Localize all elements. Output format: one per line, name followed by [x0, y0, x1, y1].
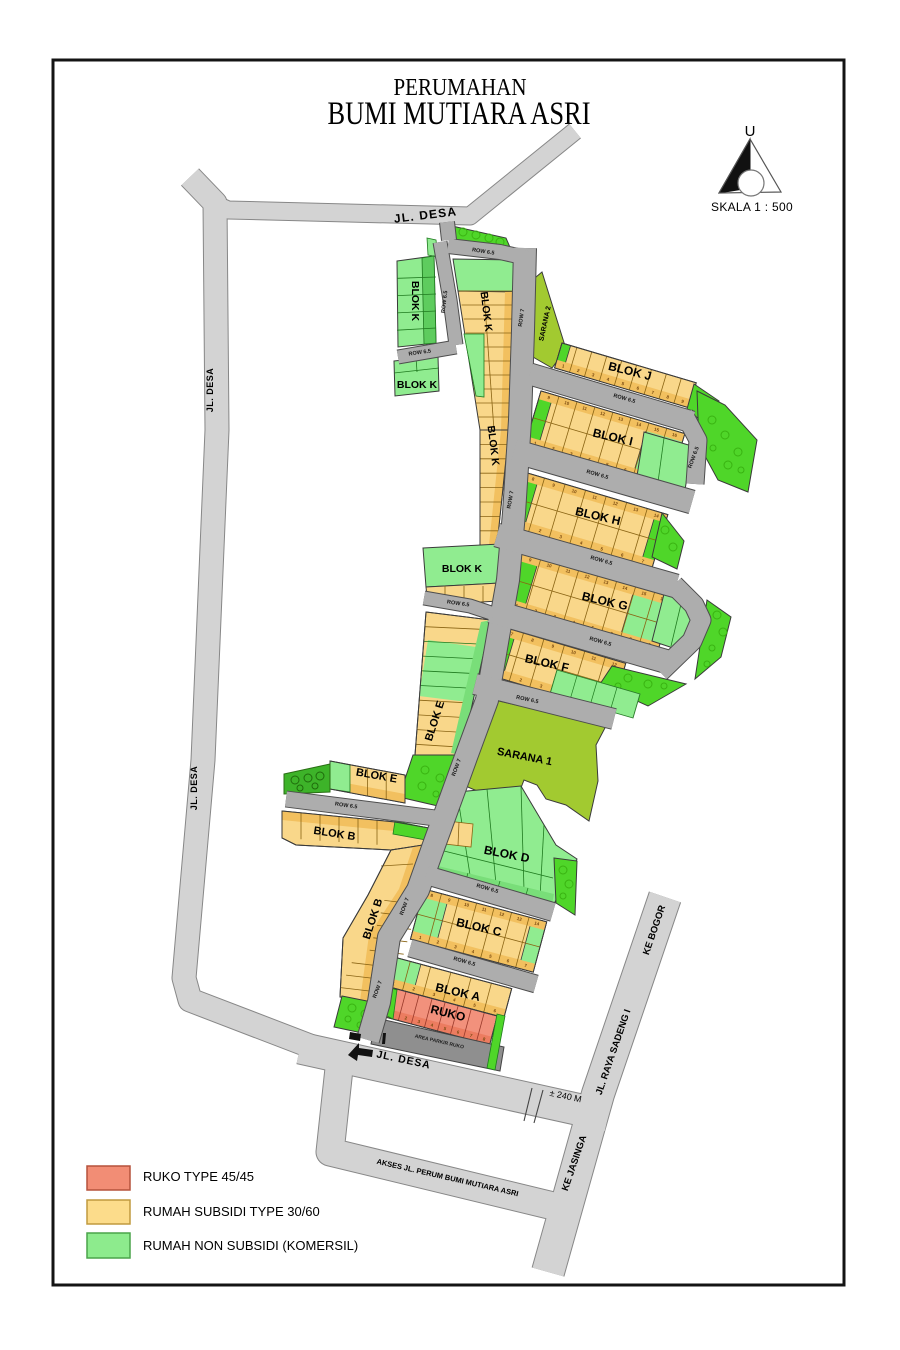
- svg-text:U: U: [745, 123, 756, 140]
- svg-text:RUMAH SUBSIDI TYPE 30/60: RUMAH SUBSIDI TYPE 30/60: [143, 1204, 320, 1219]
- svg-text:JL. DESA: JL. DESA: [189, 766, 199, 811]
- svg-text:BLOK K: BLOK K: [409, 281, 421, 322]
- svg-text:SKALA 1 : 500: SKALA 1 : 500: [711, 200, 793, 214]
- svg-text:RUMAH NON SUBSIDI (KOMERSIL): RUMAH NON SUBSIDI (KOMERSIL): [143, 1238, 358, 1253]
- svg-text:BLOK K: BLOK K: [442, 563, 483, 575]
- svg-text:BUMI MUTIARA ASRI: BUMI MUTIARA ASRI: [328, 96, 591, 132]
- svg-text:JL. DESA: JL. DESA: [205, 368, 215, 413]
- svg-text:RUKO TYPE 45/45: RUKO TYPE 45/45: [143, 1169, 254, 1184]
- svg-text:BLOK K: BLOK K: [397, 379, 438, 391]
